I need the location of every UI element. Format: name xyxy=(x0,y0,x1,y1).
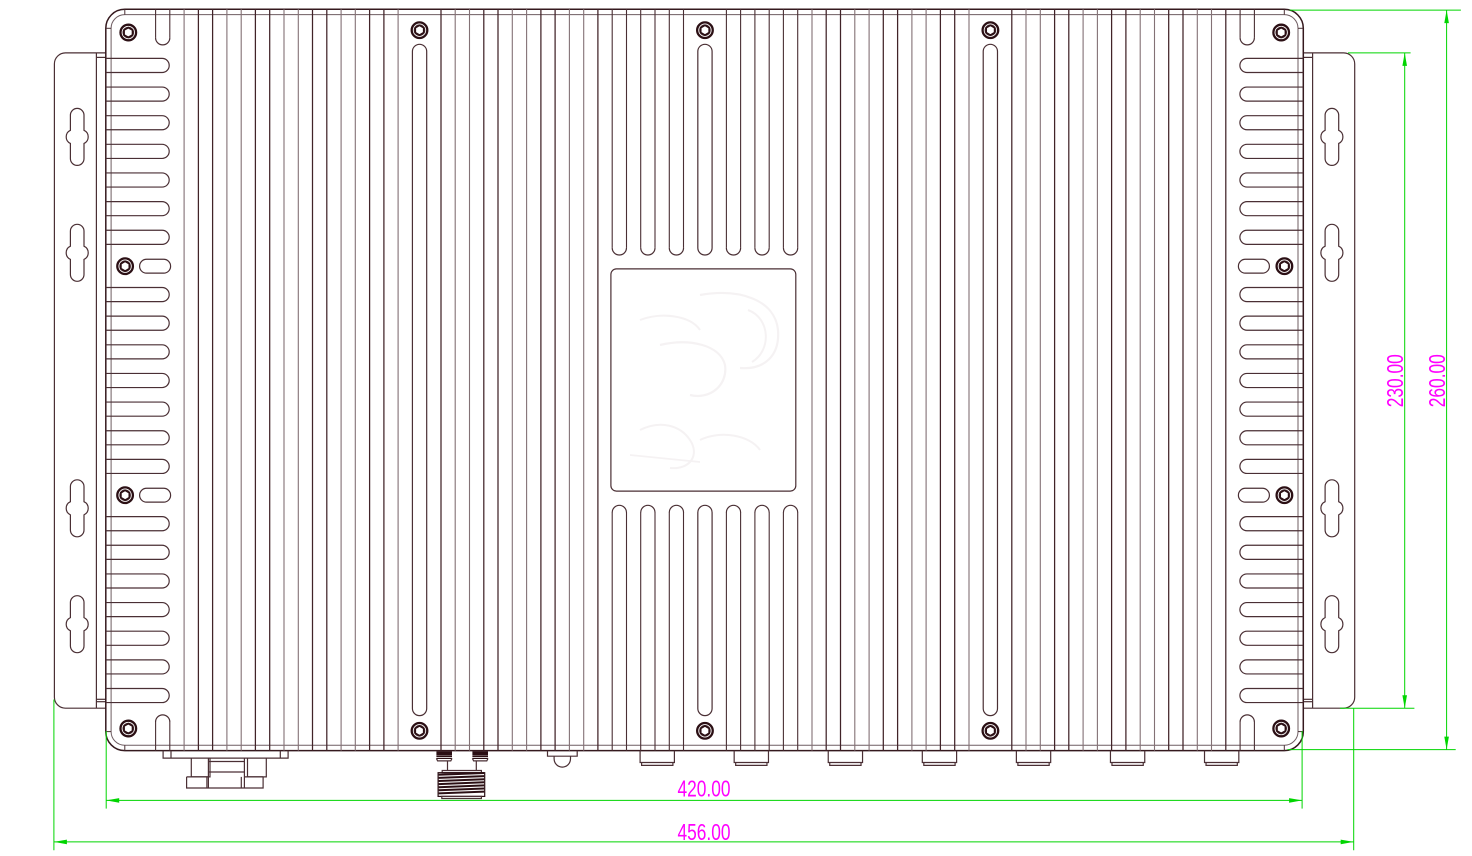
svg-text:456.00: 456.00 xyxy=(678,821,731,846)
svg-text:420.00: 420.00 xyxy=(678,777,731,802)
svg-text:260.00: 260.00 xyxy=(1426,354,1451,407)
svg-text:230.00: 230.00 xyxy=(1384,354,1409,407)
